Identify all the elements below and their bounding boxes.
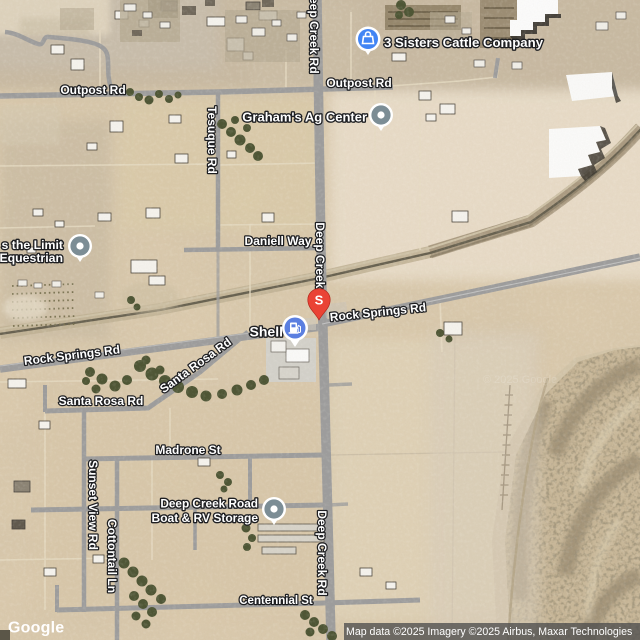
svg-text:s the Limit: s the Limit [2, 238, 64, 252]
svg-text:Deep Creek Road: Deep Creek Road [160, 497, 258, 511]
svg-text:Equestrian: Equestrian [0, 251, 63, 265]
svg-text:Sunset View Rd: Sunset View Rd [86, 460, 100, 550]
svg-text:Google: Google [8, 620, 64, 637]
svg-text:Madrone St: Madrone St [155, 443, 220, 457]
svg-text:Cottontail Ln: Cottontail Ln [105, 519, 119, 593]
svg-text:Outpost Rd: Outpost Rd [326, 76, 391, 90]
svg-text:3 Sisters Cattle Company: 3 Sisters Cattle Company [384, 35, 544, 50]
svg-text:Centennial St: Centennial St [239, 595, 313, 607]
svg-text:Deep Creek Rd: Deep Creek Rd [307, 0, 321, 74]
svg-text:Santa Rosa Rd: Santa Rosa Rd [59, 394, 144, 408]
svg-text:Outpost Rd: Outpost Rd [60, 83, 125, 97]
svg-text:S: S [315, 293, 324, 308]
svg-text:Boat & RV Storage: Boat & RV Storage [152, 511, 259, 525]
svg-text:Tesuque Rd: Tesuque Rd [205, 106, 219, 174]
svg-text:Map data ©2025 Imagery ©2025 A: Map data ©2025 Imagery ©2025 Airbus, Max… [346, 626, 632, 638]
svg-text:Daniell Way: Daniell Way [245, 234, 312, 248]
svg-text:Graham's Ag Center: Graham's Ag Center [242, 110, 367, 125]
svg-text:Deep Creek Rd: Deep Creek Rd [315, 510, 329, 595]
svg-text:Shell: Shell [250, 324, 283, 340]
